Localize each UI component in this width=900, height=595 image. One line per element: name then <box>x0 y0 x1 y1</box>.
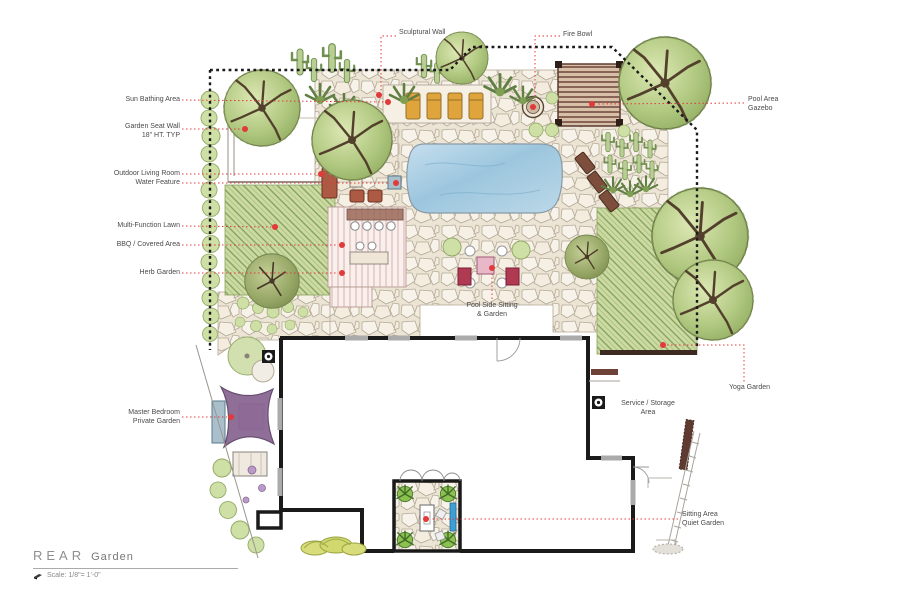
tree <box>224 70 300 146</box>
tree <box>245 254 299 308</box>
gravel-mound <box>653 544 683 554</box>
label-bbq-covered-area: BBQ / Covered Area <box>117 241 180 250</box>
label-multi-function-lawn: Multi-Function Lawn <box>117 222 180 231</box>
planter <box>506 268 519 285</box>
label-master-bedroom-garden: Master BedroomPrivate Garden <box>128 409 180 426</box>
label-service-storage-area: Service / StorageArea <box>603 400 693 417</box>
label-sitting-area-quiet-garden: Sitting AreaQuiet Garden <box>682 511 724 528</box>
label-fire-bowl: Fire Bowl <box>563 31 592 40</box>
label-herb-garden: Herb Garden <box>140 269 180 278</box>
hedge-wall <box>600 350 697 355</box>
planter <box>458 268 471 285</box>
label-yoga-garden: Yoga Garden <box>729 384 770 393</box>
label-sculptural-wall: Sculptural Wall <box>399 29 445 38</box>
tree <box>673 260 753 340</box>
title-block: REARGarden Scale: 1/8"= 1'-0" <box>33 547 238 580</box>
rear-garden-plan: Sun Bathing Area Garden Seat Wall18" HT.… <box>0 0 900 595</box>
label-sun-bathing-area: Sun Bathing Area <box>126 96 181 105</box>
label-pool-side-sitting: Pool Side Sitting& Garden <box>447 302 537 319</box>
quiet-garden-courtyard <box>394 470 460 551</box>
tree <box>312 100 392 180</box>
label-outdoor-living-room: Outdoor Living Room <box>114 170 180 179</box>
pool-area-gazebo <box>546 61 633 137</box>
scale-label: Scale: 1/8"= 1'-0" <box>47 572 101 579</box>
page-subtitle: Garden <box>91 551 134 563</box>
swimming-pool <box>407 144 563 213</box>
bench-blue <box>450 503 456 531</box>
tree <box>565 235 609 279</box>
bbq-counter <box>347 209 403 220</box>
label-pool-area-gazebo: Pool AreaGazebo <box>748 96 778 113</box>
page-title: REAR <box>33 548 85 563</box>
scale-icon <box>33 571 43 580</box>
title-underline <box>33 568 238 569</box>
label-garden-seat-wall: Garden Seat Wall18" HT. TYP <box>125 123 180 140</box>
accent-grasses <box>301 537 366 555</box>
label-water-feature: Water Feature <box>136 179 180 188</box>
kitchen-island <box>350 252 388 264</box>
tree <box>619 37 711 129</box>
sun-bathing-area <box>383 85 491 123</box>
plan-drawing <box>0 0 900 595</box>
